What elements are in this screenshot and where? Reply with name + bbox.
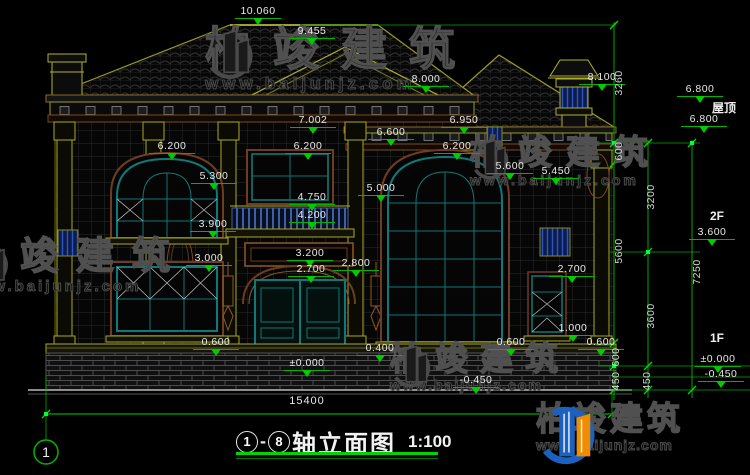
window-left-2f	[106, 153, 228, 244]
vent-right	[540, 228, 570, 256]
main-roof	[48, 25, 476, 97]
window-right-small	[524, 272, 570, 341]
balcony	[226, 206, 354, 237]
axis-start-bubble: 1	[236, 431, 258, 453]
title-underline-thin	[236, 458, 438, 459]
window-left-1f	[106, 262, 228, 342]
secondary-cornice	[344, 127, 616, 150]
vent-left	[58, 230, 78, 256]
chimney	[48, 54, 86, 97]
axis-range-dash: -	[260, 431, 266, 452]
plinth	[46, 344, 616, 390]
axis-end-bubble: 8	[268, 431, 290, 453]
plaque	[245, 243, 353, 266]
vent-center	[487, 127, 502, 157]
axis-bubble-label: 1	[42, 444, 50, 460]
overall-width-dimension: 15400	[289, 395, 325, 407]
drawing-scale: 1:100	[408, 432, 451, 452]
ground-line	[28, 390, 632, 394]
title-underline	[236, 452, 438, 455]
window-center-2f	[247, 150, 333, 204]
cad-elevation-canvas: 柏竣建筑 www.baijunjz.com 柏竣建筑 www.baijunjz.…	[0, 0, 750, 475]
building-linework	[0, 0, 750, 475]
window-right-large	[376, 150, 516, 349]
main-cornice	[46, 95, 478, 122]
